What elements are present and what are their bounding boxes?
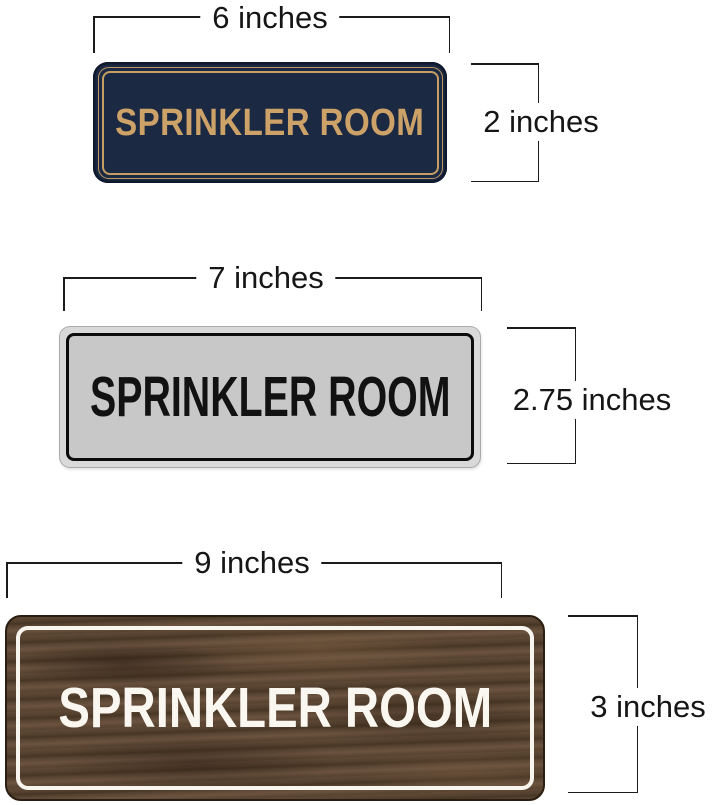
height-dimension-tick-top [568, 615, 638, 617]
height-dimension-tick-bottom [471, 181, 539, 183]
sign-text: SPRINKLER ROOM [115, 104, 424, 142]
width-dimension-tick-right [481, 277, 483, 311]
sign-size-comparison-diagram: 6 inches SPRINKLER ROOM 2 inches 7 inche… [0, 0, 722, 805]
height-dimension-tick-bottom [568, 792, 638, 794]
sign-navy-gold: SPRINKLER ROOM [93, 62, 447, 183]
sign-text: SPRINKLER ROOM [58, 680, 492, 737]
sign-face: SPRINKLER ROOM [66, 333, 474, 461]
sign-text: SPRINKLER ROOM [90, 369, 451, 426]
width-dimension-label: 9 inches [182, 544, 321, 582]
sign-walnut-wood: SPRINKLER ROOM [5, 615, 545, 801]
sign-face: SPRINKLER ROOM [102, 71, 439, 175]
width-dimension-tick-right [501, 562, 503, 598]
sign-face: SPRINKLER ROOM [16, 626, 534, 790]
width-dimension-tick-left [6, 562, 8, 598]
height-dimension-tick-top [507, 327, 576, 329]
height-dimension-tick-bottom [507, 463, 576, 465]
height-dimension-label: 2 inches [471, 103, 610, 141]
sign-silver: SPRINKLER ROOM [60, 327, 480, 467]
height-dimension-label: 2.75 inches [501, 381, 684, 419]
width-dimension-label: 7 inches [196, 259, 335, 297]
width-dimension-tick-right [449, 16, 451, 53]
height-dimension-tick-top [471, 63, 539, 65]
width-dimension-tick-left [93, 16, 95, 53]
width-dimension-tick-left [63, 277, 65, 311]
width-dimension-label: 6 inches [200, 0, 339, 37]
height-dimension-label: 3 inches [578, 688, 717, 726]
